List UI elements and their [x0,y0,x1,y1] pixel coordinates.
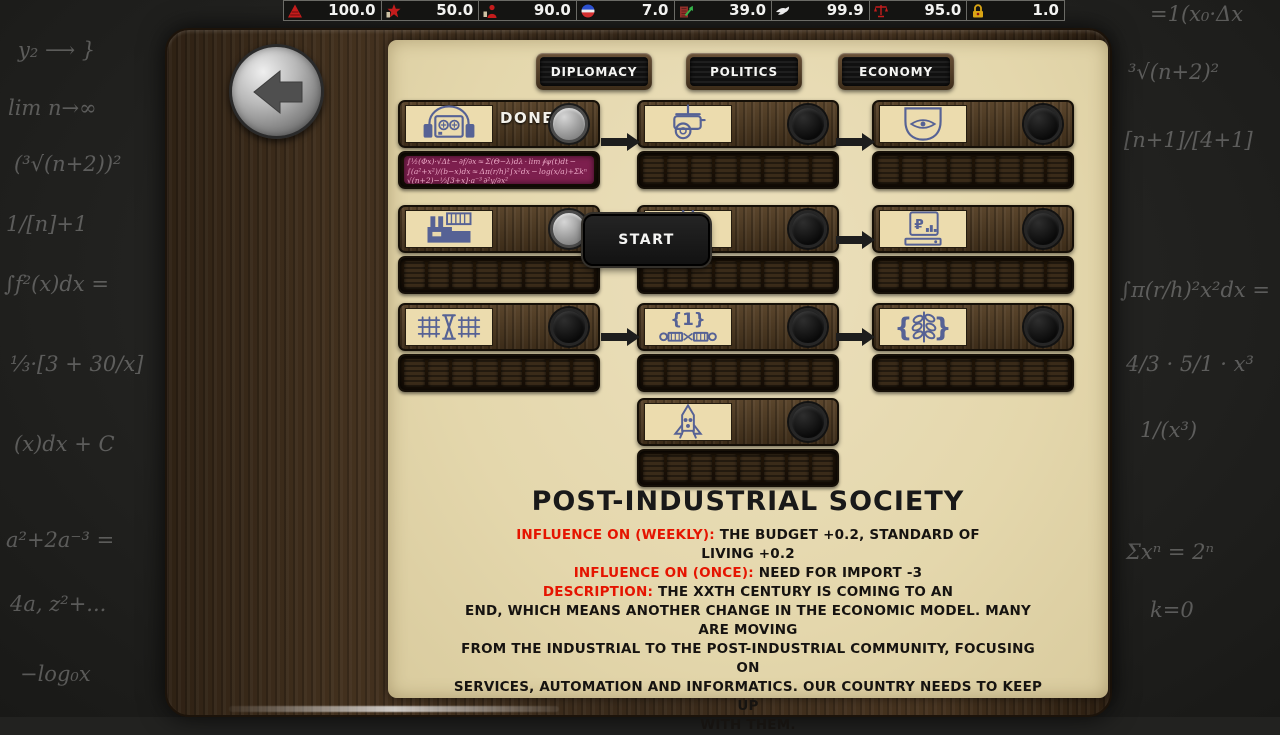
chalk-formula: 4/3 · 5/1 · x³ [1126,352,1254,376]
tech-node-rocket[interactable] [637,398,839,487]
stat-party: 50.0 [382,0,480,21]
chalk-formula: ∫f²(x)dx = [4,272,109,296]
start-research-button[interactable]: START [583,214,710,266]
influence-weekly-label: INFLUENCE ON (WEEKLY): [516,527,715,543]
description-label: DESCRIPTION: [543,584,653,600]
monitor-eye-icon [879,105,967,143]
research-progress-bar [637,449,839,487]
svg-text:{1}: {1} [670,310,705,329]
chalk-formula: ⅓·[3 + 30/x] [10,352,143,376]
chalk-formula: Σxⁿ = 2ⁿ [1126,540,1214,564]
tree-arrow [836,333,862,341]
research-title: POST-INDUSTRIAL SOCIETY [448,486,1048,517]
stat-peace: 99.9 [772,0,870,21]
stat-value: 100.0 [303,1,376,20]
stat-security: 1.0 [967,0,1065,21]
influence-once-text: NEED FOR IMPORT -3 [759,565,923,581]
description-line: DESCRIPTION: THE XXTH CENTURY IS COMING … [448,583,1048,602]
chalk-formula: (³√(n+2))² [14,152,121,176]
tech-node-camera[interactable] [637,100,839,189]
chalk-formula: ∫π(r/h)²x²dx = [1120,278,1270,302]
stat-value: 50.0 [401,1,474,20]
research-progress-bar [637,151,839,189]
chalk-formula: [n+1]/[4+1] [1124,128,1253,152]
party-star-icon [385,3,401,19]
research-progress-bar [872,354,1074,392]
stat-value: 1.0 [986,1,1059,20]
research-progress-bar [872,256,1074,294]
node-indicator-light [1024,210,1062,248]
node-indicator-light [789,403,827,441]
stat-economy: 39.0 [675,0,773,21]
description-text: FROM THE INDUSTRIAL TO THE POST-INDUSTRI… [448,640,1048,678]
tech-node-monitor-eye[interactable] [872,100,1074,189]
node-indicator-light [550,308,588,346]
rocket-icon [644,403,732,441]
chalk-formula: 1/[n]+1 [6,212,87,236]
chalk-formula: =1(x₀·Δx [1150,2,1243,26]
stat-value: 95.0 [889,1,962,20]
influence-once-line: INFLUENCE ON (ONCE): NEED FOR IMPORT -3 [448,564,1048,583]
wheat-icon: { } [879,308,967,346]
surveillance-camera-icon [644,105,732,143]
tree-arrow [836,236,862,244]
tech-node-space-station[interactable] [398,303,600,392]
node-indicator-light [1024,308,1062,346]
tech-node-factory[interactable] [398,205,600,294]
stat-value: 39.0 [694,1,767,20]
chalk-formula: −log₀x [20,662,91,686]
chalk-formula: 4a, z²+... [10,592,106,616]
stat-value: 90.0 [498,1,571,20]
tree-arrow [601,333,627,341]
node-indicator-light [1024,105,1062,143]
economy-building-icon [678,3,694,19]
energy-pyramid-icon [287,3,303,19]
space-station-icon [405,308,493,346]
node-status-label: DONE [500,109,554,127]
tree-arrow [601,138,627,146]
tech-node-connectors[interactable]: {1} [637,303,839,392]
tab-label: POLITICS [690,57,798,86]
chalk-formula: ³√(n+2)² [1128,60,1219,84]
tech-node-radio[interactable]: DONE ∫½(Φx)·√Δt − ∂f/∂x ≈ Σ(Θ−λ)dλ · lim… [398,100,600,189]
description-text: WITH THEM. [448,716,1048,735]
node-indicator-light [789,210,827,248]
back-arrow-icon [246,61,308,123]
chalk-formula: a²+2a⁻³ = [6,528,114,552]
chalk-formula: 1/(x³) [1140,418,1197,442]
research-progress-bar [637,354,839,392]
description-text: SERVICES, AUTOMATION AND INFORMATICS. OU… [448,678,1048,716]
description-text: END, WHICH MEANS ANOTHER CHANGE IN THE E… [448,602,1048,640]
stat-energy: 100.0 [283,0,382,21]
tree-arrow [836,138,862,146]
stat-faction: 7.0 [577,0,675,21]
research-progress-bar [398,256,600,294]
stat-population: 90.0 [479,0,577,21]
research-progress-bar [872,151,1074,189]
resource-bar: 100.0 50.0 90.0 7.0 39.0 [283,0,1065,21]
stat-value: 99.9 [791,1,864,20]
research-details: POST-INDUSTRIAL SOCIETY INFLUENCE ON (WE… [448,486,1048,735]
tech-node-wheat[interactable]: { } [872,303,1074,392]
faction-roundel-icon [580,3,596,19]
description-text: THE XXTH CENTURY IS COMING TO AN [658,584,953,600]
start-button-label: START [618,232,675,248]
svg-text:₽: ₽ [914,217,924,233]
node-indicator-light [789,105,827,143]
chalk-formula: lim n→∞ [8,96,97,120]
stat-justice: 95.0 [870,0,968,21]
research-progress-bar [398,354,600,392]
factory-icon [405,210,493,248]
influence-weekly-line: INFLUENCE ON (WEEKLY): THE BUDGET +0.2, … [448,526,1048,545]
tab-label: ECONOMY [842,57,950,86]
influence-once-label: INFLUENCE ON (ONCE): [574,565,754,581]
stat-value: 7.0 [596,1,669,20]
influence-weekly-text: LIVING +0.2 [448,545,1048,564]
security-lock-icon [970,3,986,19]
influence-weekly-text: THE BUDGET +0.2, STANDARD OF [720,527,980,543]
peace-dove-icon [775,3,791,19]
chalk-formula: (x)dx + C [14,432,115,456]
node-indicator-light [550,105,588,143]
radio-receiver-icon [405,105,493,143]
connectors-icon: {1} [644,308,732,346]
computer-ruble-icon: ₽ [879,210,967,248]
research-progress-bar: ∫½(Φx)·√Δt − ∂f/∂x ≈ Σ(Θ−λ)dλ · lim ∮ψ(t… [398,151,600,189]
research-progress-complete: ∫½(Φx)·√Δt − ∂f/∂x ≈ Σ(Θ−λ)dλ · lim ∮ψ(t… [404,156,594,184]
chalk-formula: y₂ ⟶ } [18,38,95,62]
tech-node-computer[interactable]: ₽ [872,205,1074,294]
node-indicator-light [789,308,827,346]
chalk-formula: k=0 [1150,598,1194,622]
tab-diplomacy[interactable]: DIPLOMACY [536,53,652,90]
tab-politics[interactable]: POLITICS [686,53,802,90]
tab-economy[interactable]: ECONOMY [838,53,954,90]
svg-text:{: { [894,312,912,342]
svg-text:}: } [934,312,952,342]
justice-scales-icon [873,3,889,19]
back-button[interactable] [229,44,324,139]
population-support-icon [482,3,498,19]
tab-label: DIPLOMACY [540,57,648,86]
research-formula-texture: ∫½(Φx)·√Δt − ∂f/∂x ≈ Σ(Θ−λ)dλ · lim ∮ψ(t… [407,157,591,184]
